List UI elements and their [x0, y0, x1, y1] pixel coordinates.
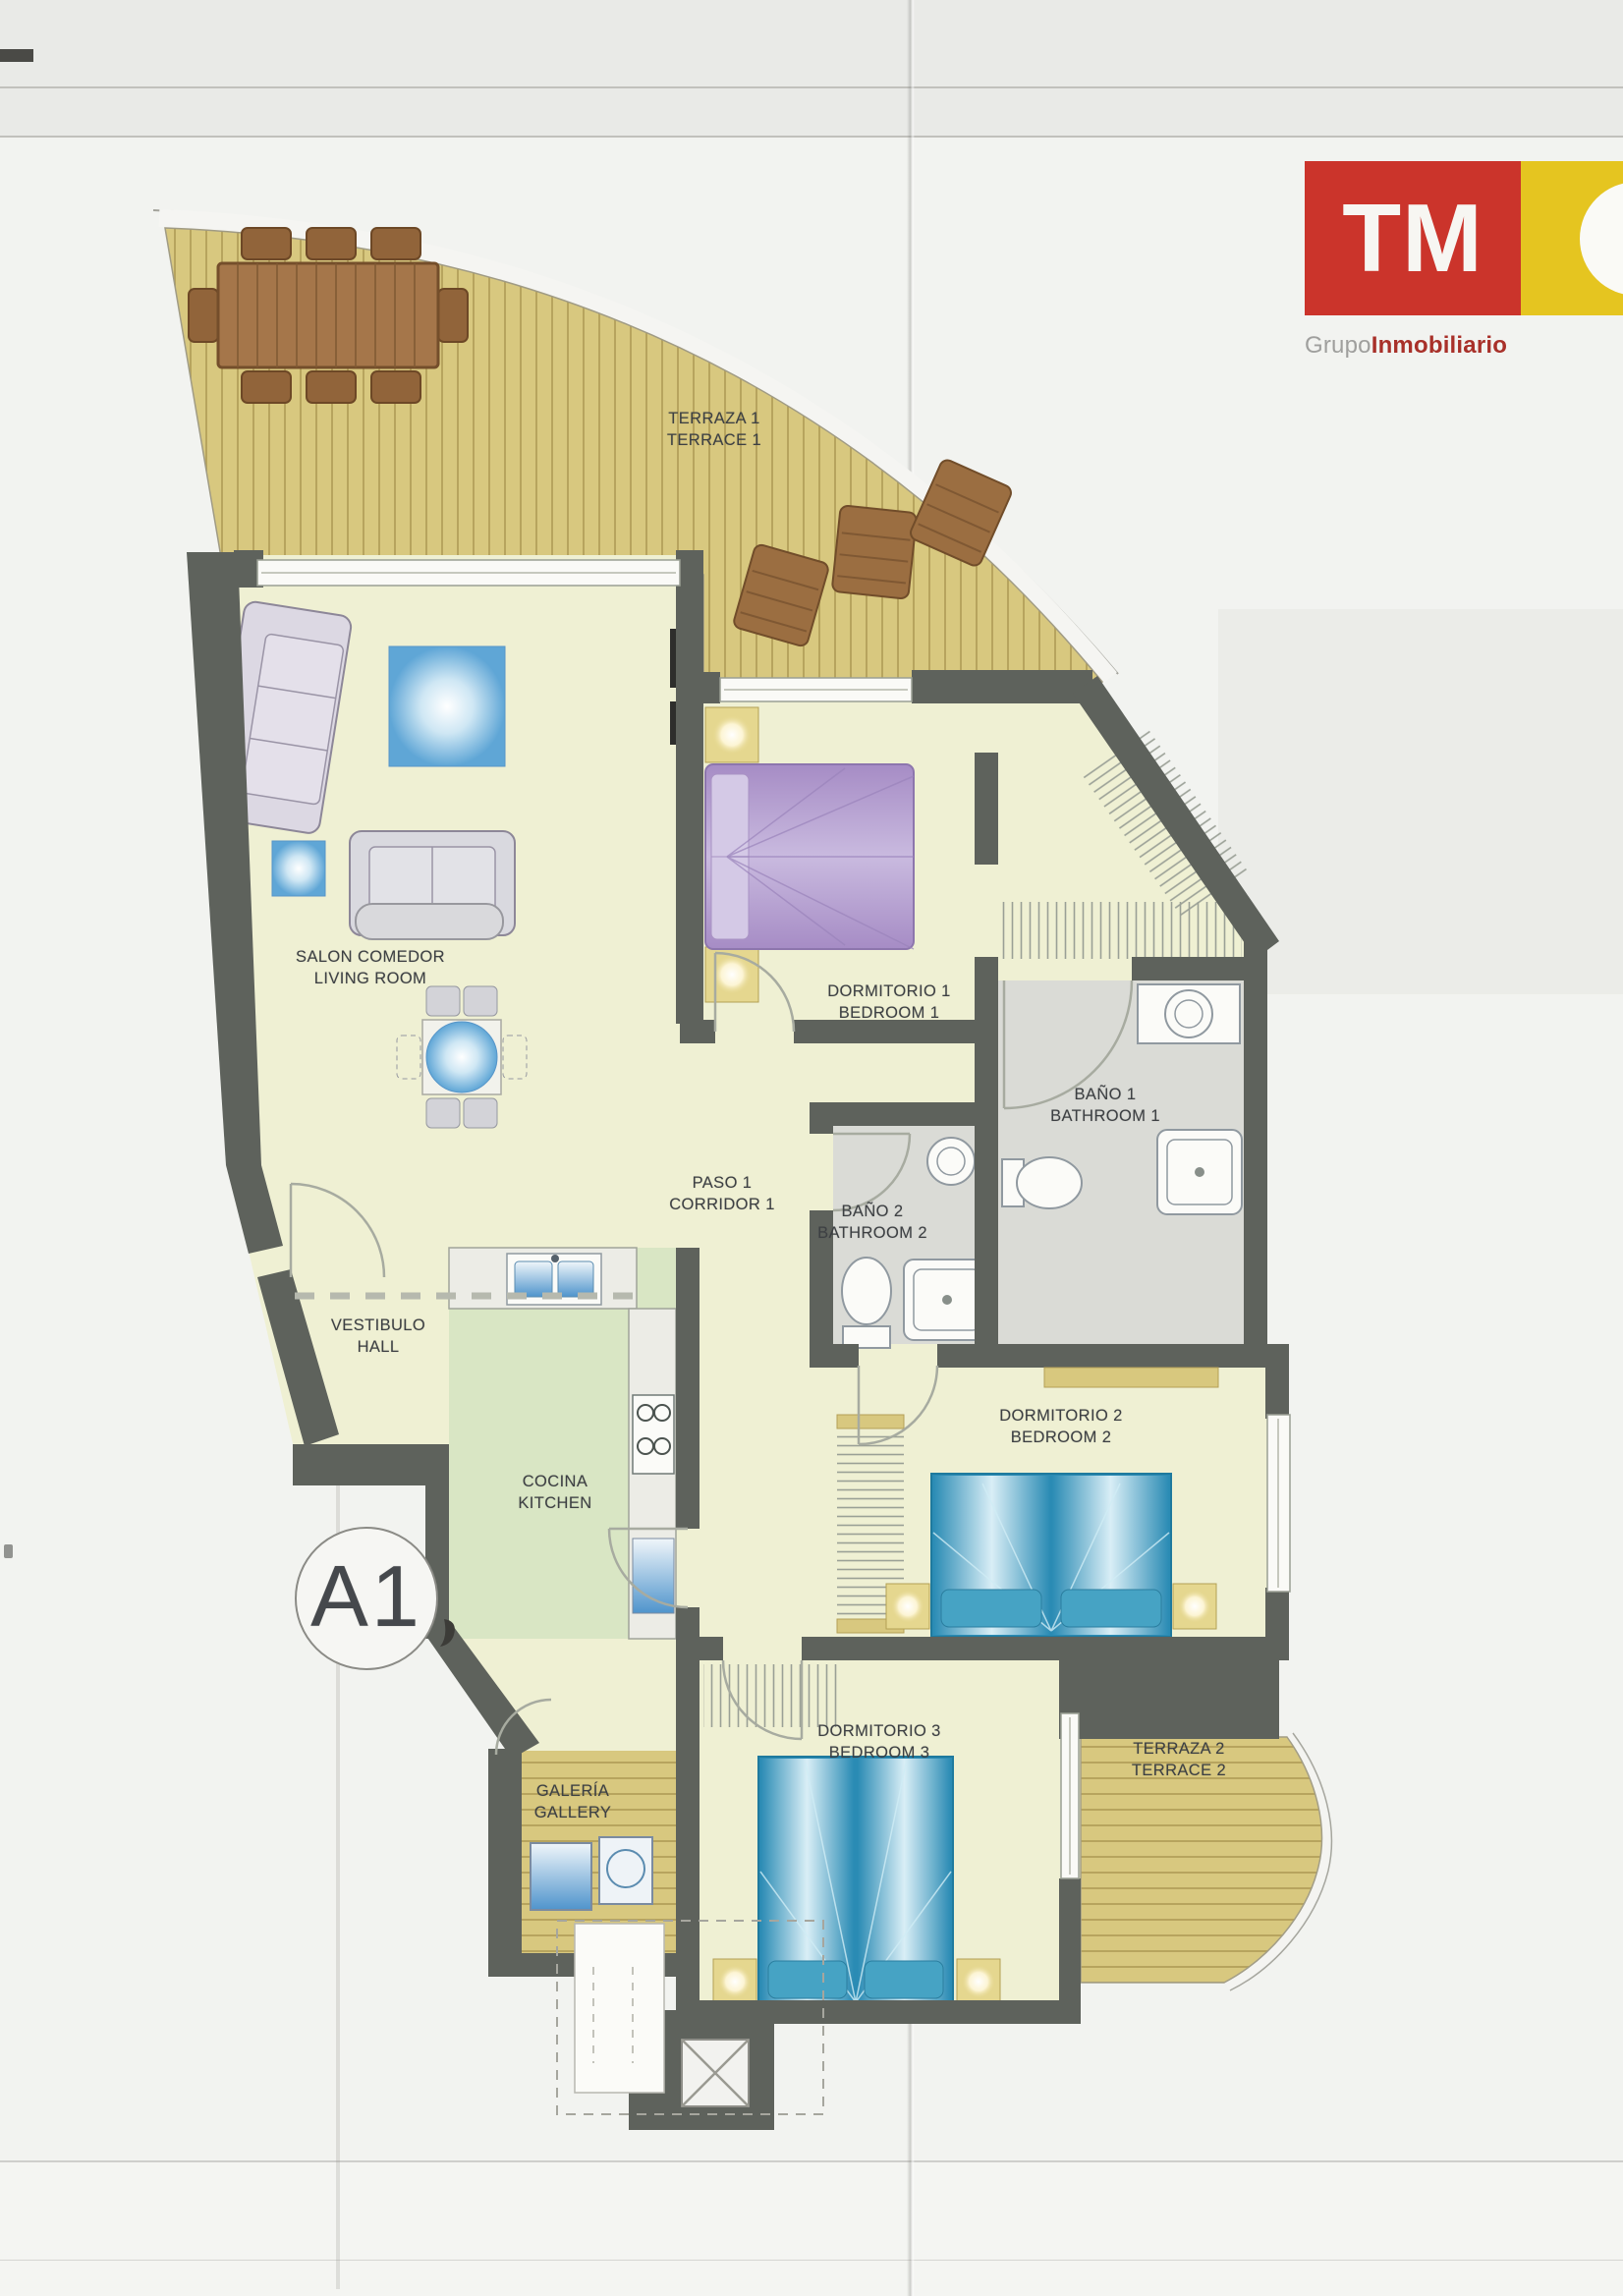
rug-large	[389, 646, 505, 766]
scanned-floorplan-page: TM GrupoInmobiliario	[0, 0, 1623, 2296]
room-label-en: HALL	[270, 1336, 486, 1358]
room-label-vestibulo: VESTIBULOHALL	[270, 1315, 486, 1358]
room-label-es: TERRAZA 2	[1071, 1738, 1287, 1760]
room-label-es: GALERÍA	[465, 1780, 681, 1802]
room-label-bano2: BAÑO 2BATHROOM 2	[764, 1201, 980, 1244]
room-label-terraza1: TERRAZA 1TERRACE 1	[606, 408, 822, 451]
room-label-salon: SALON COMEDORLIVING ROOM	[262, 946, 478, 989]
room-label-en: BATHROOM 1	[997, 1105, 1213, 1127]
room-label-dormitorio2: DORMITORIO 2BEDROOM 2	[953, 1405, 1169, 1448]
room-label-terraza2: TERRAZA 2TERRACE 2	[1071, 1738, 1287, 1781]
rug-small	[272, 841, 325, 896]
room-label-es: DORMITORIO 2	[953, 1405, 1169, 1427]
room-label-es: BAÑO 2	[764, 1201, 980, 1222]
room-label-en: KITCHEN	[447, 1492, 663, 1514]
room-label-bano1: BAÑO 1BATHROOM 1	[997, 1084, 1213, 1127]
room-label-en: GALLERY	[465, 1802, 681, 1823]
room-label-en: BEDROOM 3	[771, 1742, 987, 1764]
bedroom-2-shelf	[1044, 1368, 1218, 1387]
room-label-en: BATHROOM 2	[764, 1222, 980, 1244]
room-label-es: DORMITORIO 3	[771, 1720, 987, 1742]
room-label-en: BEDROOM 2	[953, 1427, 1169, 1448]
bedroom-2-furniture	[886, 1474, 1216, 1637]
room-label-es: BAÑO 1	[997, 1084, 1213, 1105]
room-label-es: SALON COMEDOR	[262, 946, 478, 968]
room-label-es: DORMITORIO 1	[781, 980, 997, 1002]
room-label-es: PASO 1	[614, 1172, 830, 1194]
room-label-en: TERRACE 2	[1071, 1760, 1287, 1781]
room-label-es: COCINA	[447, 1471, 663, 1492]
unit-label: A1	[288, 1546, 445, 1647]
room-label-en: TERRACE 1	[606, 429, 822, 451]
room-label-dormitorio1: DORMITORIO 1BEDROOM 1	[781, 980, 997, 1024]
structural-pillar	[682, 2040, 749, 2106]
room-label-en: BEDROOM 1	[781, 1002, 997, 1024]
room-label-es: TERRAZA 1	[606, 408, 822, 429]
floorplan-drawing	[0, 0, 1623, 2296]
room-label-galeria: GALERÍAGALLERY	[465, 1780, 681, 1823]
sideboard	[356, 904, 503, 939]
room-label-es: VESTIBULO	[270, 1315, 486, 1336]
gallery-appliances	[531, 1837, 652, 1910]
room-label-cocina: COCINAKITCHEN	[447, 1471, 663, 1514]
room-label-en: LIVING ROOM	[262, 968, 478, 989]
room-label-dormitorio3: DORMITORIO 3BEDROOM 3	[771, 1720, 987, 1764]
